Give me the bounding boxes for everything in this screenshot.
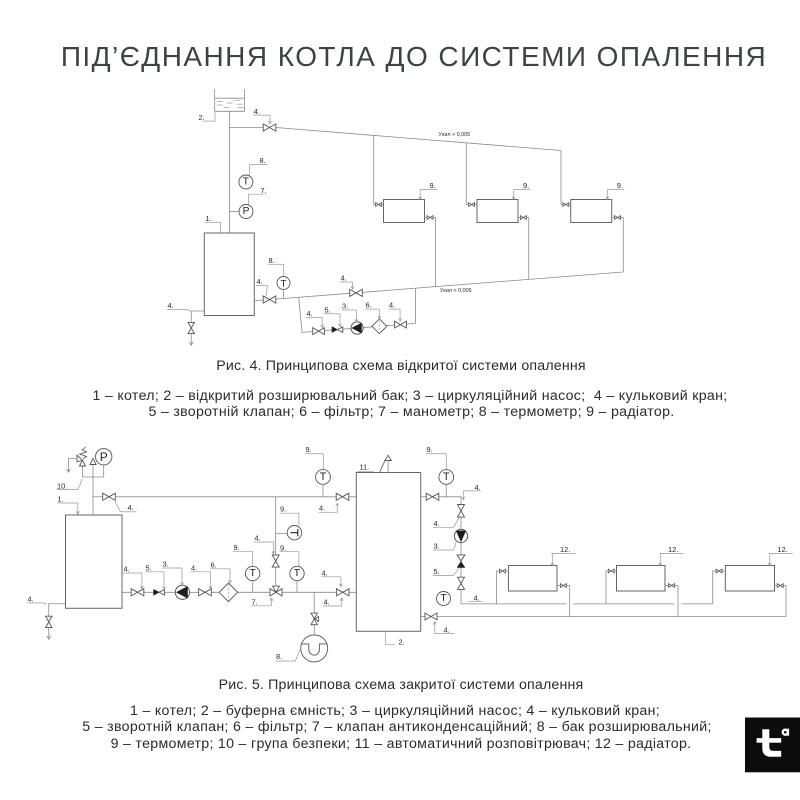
svg-text:4.: 4. — [168, 301, 174, 310]
svg-text:5.: 5. — [146, 563, 152, 572]
svg-text:3.: 3. — [342, 302, 348, 311]
svg-text:T: T — [294, 568, 301, 579]
svg-text:1.: 1. — [58, 495, 64, 504]
svg-text:T: T — [443, 471, 450, 483]
svg-text:4.: 4. — [324, 598, 330, 607]
svg-text:9.: 9. — [280, 543, 286, 552]
svg-text:11.: 11. — [360, 462, 370, 471]
svg-text:T: T — [250, 568, 257, 579]
svg-text:6.: 6. — [366, 301, 372, 310]
svg-text:12.: 12. — [560, 545, 570, 554]
svg-text:4.: 4. — [191, 563, 197, 572]
svg-text:4.: 4. — [254, 107, 260, 116]
svg-text:9.: 9. — [234, 543, 240, 552]
svg-text:8.: 8. — [260, 156, 266, 165]
svg-text:4.: 4. — [128, 503, 134, 512]
svg-text:4.: 4. — [307, 309, 313, 318]
svg-text:9.: 9. — [280, 505, 286, 514]
svg-text:4.: 4. — [389, 301, 395, 310]
svg-text:5.: 5. — [325, 305, 331, 314]
svg-text:7.: 7. — [261, 186, 267, 195]
svg-text:4.: 4. — [474, 593, 480, 602]
svg-text:4.: 4. — [434, 519, 440, 528]
svg-text:5.: 5. — [434, 567, 440, 576]
svg-text:3.: 3. — [434, 542, 440, 551]
svg-text:T: T — [281, 278, 287, 289]
svg-text:4.: 4. — [444, 625, 450, 634]
svg-text:2.: 2. — [199, 113, 205, 122]
svg-text:9.: 9. — [430, 181, 436, 190]
svg-text:P: P — [243, 206, 250, 217]
svg-text:4.: 4. — [319, 504, 325, 513]
svg-text:4.: 4. — [255, 534, 261, 543]
svg-text:T: T — [440, 593, 446, 604]
svg-text:3.: 3. — [163, 560, 169, 569]
svg-text:9.: 9. — [427, 445, 433, 454]
svg-text:2.: 2. — [399, 637, 405, 646]
svg-text:9.: 9. — [523, 181, 529, 190]
svg-text:T: T — [320, 471, 327, 483]
svg-text:4.: 4. — [28, 594, 34, 603]
svg-text:9.: 9. — [617, 181, 623, 190]
svg-text:10.: 10. — [57, 481, 67, 490]
svg-text:7.: 7. — [252, 597, 258, 606]
svg-text:1.: 1. — [206, 214, 212, 223]
svg-text:6.: 6. — [211, 560, 217, 569]
svg-text:4.: 4. — [257, 277, 263, 286]
svg-text:4.: 4. — [341, 274, 347, 283]
svg-text:8.: 8. — [269, 256, 275, 265]
svg-text:8.: 8. — [276, 652, 282, 661]
svg-text:Ухил < 0,005: Ухил < 0,005 — [440, 288, 472, 294]
svg-text:12.: 12. — [668, 545, 678, 554]
svg-text:Ухил > 0,005: Ухил > 0,005 — [439, 132, 471, 138]
svg-text:4.: 4. — [322, 568, 328, 577]
svg-text:12.: 12. — [778, 545, 788, 554]
svg-text:4.: 4. — [124, 565, 130, 574]
svg-text:T: T — [243, 177, 249, 188]
svg-text:P: P — [100, 450, 108, 464]
svg-text:9.: 9. — [306, 445, 312, 454]
